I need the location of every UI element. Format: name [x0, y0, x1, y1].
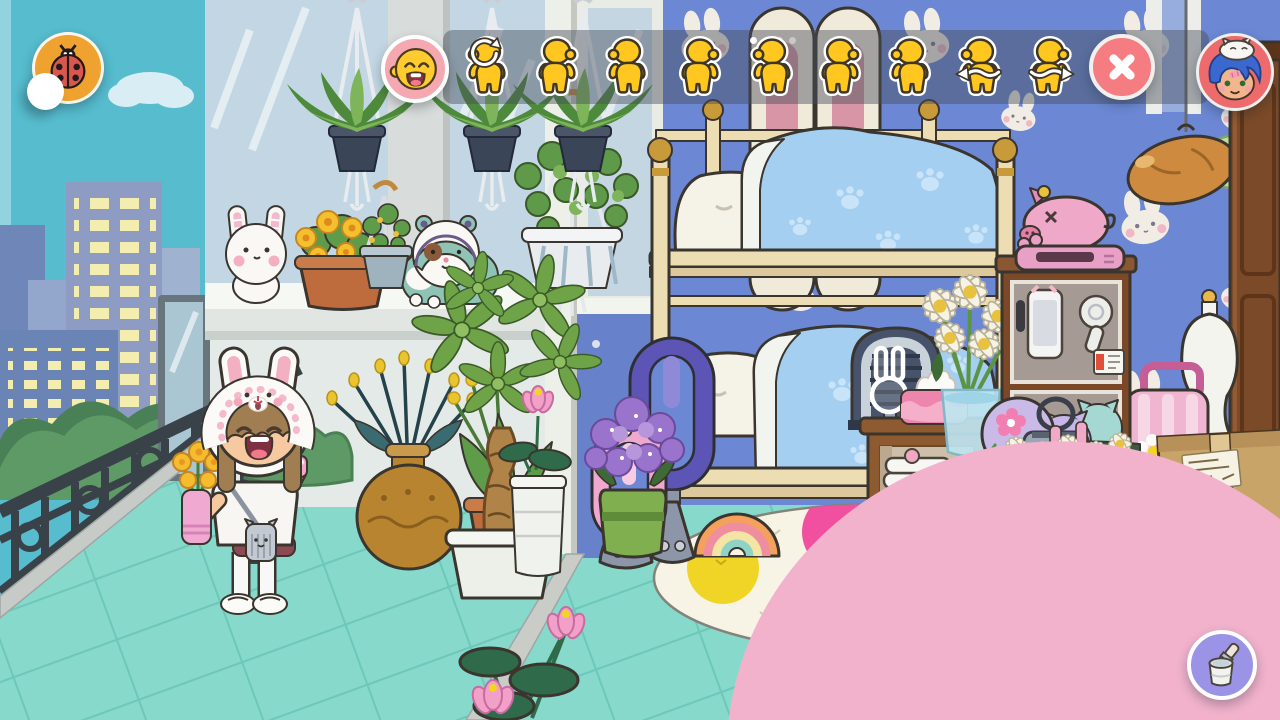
pose-3[interactable]: [669, 36, 731, 100]
pose-5[interactable]: [809, 36, 871, 100]
pose-1[interactable]: [526, 36, 588, 100]
ladybug-button[interactable]: [32, 32, 104, 104]
pose-rotate[interactable]: [456, 36, 518, 100]
face-reset-button[interactable]: [381, 35, 449, 103]
pose-arrow-right-icon: [1019, 36, 1081, 100]
pose-stand-icon: [809, 36, 871, 100]
pose-2[interactable]: [596, 36, 658, 100]
cat-on-head-icon: [1220, 37, 1254, 60]
pose-arrow-left-icon: [949, 36, 1011, 100]
close-button[interactable]: [1089, 34, 1155, 100]
cat-bag: [245, 519, 277, 561]
pose-stand-icon: [526, 36, 588, 100]
pose-stand-icon: [879, 36, 941, 100]
pose-4[interactable]: [741, 36, 803, 100]
room-scene: [0, 0, 1280, 720]
pose-walk-right[interactable]: [1019, 36, 1081, 100]
pose-stand-icon: [741, 36, 803, 100]
player-avatar-icon: [1199, 36, 1271, 108]
happy-face-icon: [389, 43, 441, 95]
pose-stand-icon: [669, 36, 731, 100]
game-screen: const data = JSON.parse(document.getElem…: [0, 0, 1280, 720]
pose-stand-icon: [596, 36, 658, 100]
pose-6[interactable]: [879, 36, 941, 100]
avatar-button[interactable]: [1196, 33, 1274, 111]
pose-walk-left[interactable]: [949, 36, 1011, 100]
ladybug-white-dot: [27, 73, 64, 110]
paint-button[interactable]: [1187, 630, 1257, 700]
cabinet-first-aid-kit: [1094, 350, 1124, 374]
close-x-icon: [1101, 46, 1143, 88]
paint-bucket-icon: [1199, 642, 1245, 688]
pose-rotate-icon: [456, 36, 518, 100]
